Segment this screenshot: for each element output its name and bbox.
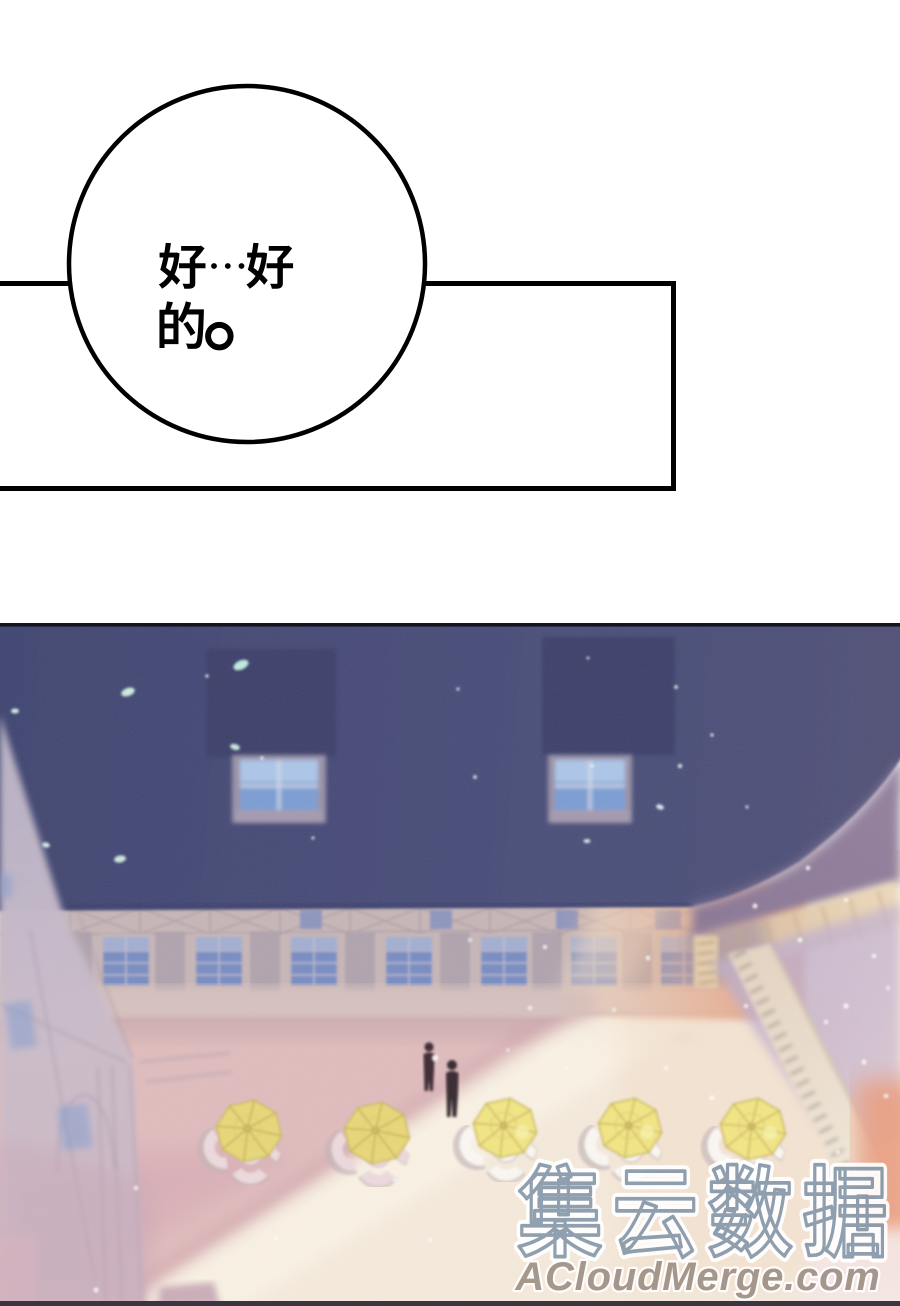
svg-text:ACloudMerge.com: ACloudMerge.com	[514, 1255, 880, 1299]
